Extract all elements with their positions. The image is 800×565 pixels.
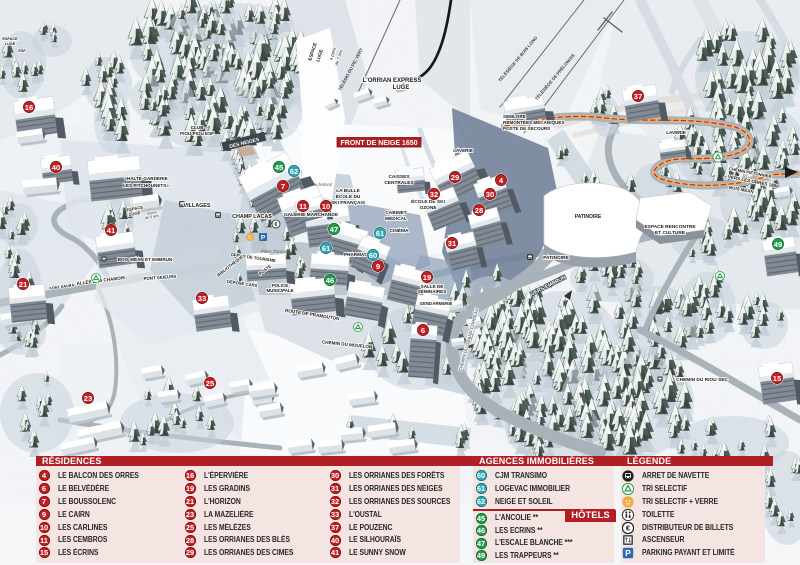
svg-text:LES PITCHOUNETS»: LES PITCHOUNETS»: [123, 183, 169, 188]
svg-text:LAVERIE: LAVERIE: [453, 148, 473, 153]
svg-text:47: 47: [330, 225, 338, 234]
svg-text:23: 23: [84, 394, 92, 403]
svg-text:37: 37: [634, 92, 642, 101]
svg-text:BOIS MÉAN ET EMBRUN: BOIS MÉAN ET EMBRUN: [118, 255, 173, 262]
svg-text:SKI FRANÇAIS: SKI FRANÇAIS: [331, 200, 366, 206]
svg-text:61: 61: [322, 244, 331, 253]
svg-text:Place d'accueil: Place d'accueil: [261, 249, 290, 254]
svg-text:FRONT DE NEIGE 1650: FRONT DE NEIGE 1650: [340, 140, 417, 147]
svg-text:49: 49: [774, 240, 782, 249]
svg-text:GALERIE MARCHANDE: GALERIE MARCHANDE: [284, 212, 339, 218]
svg-text:ESPACE: ESPACE: [2, 37, 18, 41]
svg-text:62: 62: [290, 167, 298, 176]
svg-text:11: 11: [299, 202, 308, 211]
svg-text:10: 10: [322, 202, 330, 211]
svg-text:6: 6: [421, 326, 425, 335]
svg-text:31: 31: [448, 239, 457, 248]
svg-text:LUGE: LUGE: [393, 85, 410, 91]
svg-text:PATINOIRE: PATINOIRE: [543, 255, 569, 261]
svg-text:ESPACE RENCONTRE: ESPACE RENCONTRE: [644, 224, 696, 230]
svg-text:MUNICIPALE: MUNICIPALE: [267, 288, 294, 293]
svg-text:9: 9: [376, 262, 380, 271]
svg-text:29: 29: [451, 173, 459, 182]
svg-text:CLUB: CLUB: [191, 125, 204, 130]
svg-text:€: €: [274, 222, 277, 228]
svg-text:ESF: ESF: [18, 49, 26, 53]
svg-text:60: 60: [369, 251, 377, 260]
svg-text:CABINET: CABINET: [385, 210, 406, 216]
svg-text:30: 30: [486, 190, 494, 199]
svg-text:POSTE DE SECOURS: POSTE DE SECOURS: [503, 126, 550, 131]
svg-text:28: 28: [475, 206, 483, 215]
svg-text:CENTRALES: CENTRALES: [384, 180, 414, 186]
svg-text:PIOU PIOU ESF: PIOU PIOU ESF: [180, 131, 214, 136]
svg-text:19: 19: [423, 273, 431, 282]
svg-text:OZONE: OZONE: [419, 205, 437, 211]
svg-text:32: 32: [430, 190, 438, 199]
svg-text:LUGE: LUGE: [5, 42, 16, 46]
svg-text:CAISSES: CAISSES: [388, 174, 410, 180]
svg-text:61: 61: [376, 229, 385, 238]
svg-text:LA BULLE: LA BULLE: [336, 188, 360, 194]
svg-text:25: 25: [206, 379, 215, 388]
svg-text:P: P: [261, 235, 266, 242]
svg-text:46: 46: [326, 276, 334, 285]
svg-text:REMONTÉES MÉCANIQUES: REMONTÉES MÉCANIQUES: [503, 118, 565, 125]
svg-text:40: 40: [52, 163, 60, 172]
svg-text:GENDARMERIE: GENDARMERIE: [420, 301, 453, 306]
svg-text:45: 45: [275, 163, 284, 172]
svg-text:P: P: [625, 548, 631, 558]
svg-text:ET CULTURE: ET CULTURE: [655, 230, 686, 236]
svg-text:PATINOIRE: PATINOIRE: [575, 214, 602, 220]
svg-text:33: 33: [198, 294, 206, 303]
svg-text:SÉMINAIRES: SÉMINAIRES: [418, 287, 447, 294]
svg-text:15: 15: [773, 374, 782, 383]
svg-text:Place du festival: Place du festival: [300, 182, 333, 187]
svg-text:«HALTE-GARDERIE: «HALTE-GARDERIE: [124, 176, 167, 181]
svg-text:7: 7: [281, 182, 285, 191]
svg-text:16: 16: [25, 103, 33, 112]
svg-text:CHAMP LACAS: CHAMP LACAS: [232, 214, 272, 220]
svg-text:41: 41: [107, 226, 116, 235]
svg-text:CHEMIN DU RIOU SEC: CHEMIN DU RIOU SEC: [676, 377, 728, 383]
svg-text:21: 21: [19, 280, 28, 289]
svg-text:LAVERIE: LAVERIE: [666, 130, 686, 135]
svg-text:SEMLORE: SEMLORE: [503, 114, 526, 119]
svg-text:VILLAGES: VILLAGES: [184, 203, 211, 209]
svg-text:L'ORRIAN EXPRESS: L'ORRIAN EXPRESS: [363, 78, 422, 84]
